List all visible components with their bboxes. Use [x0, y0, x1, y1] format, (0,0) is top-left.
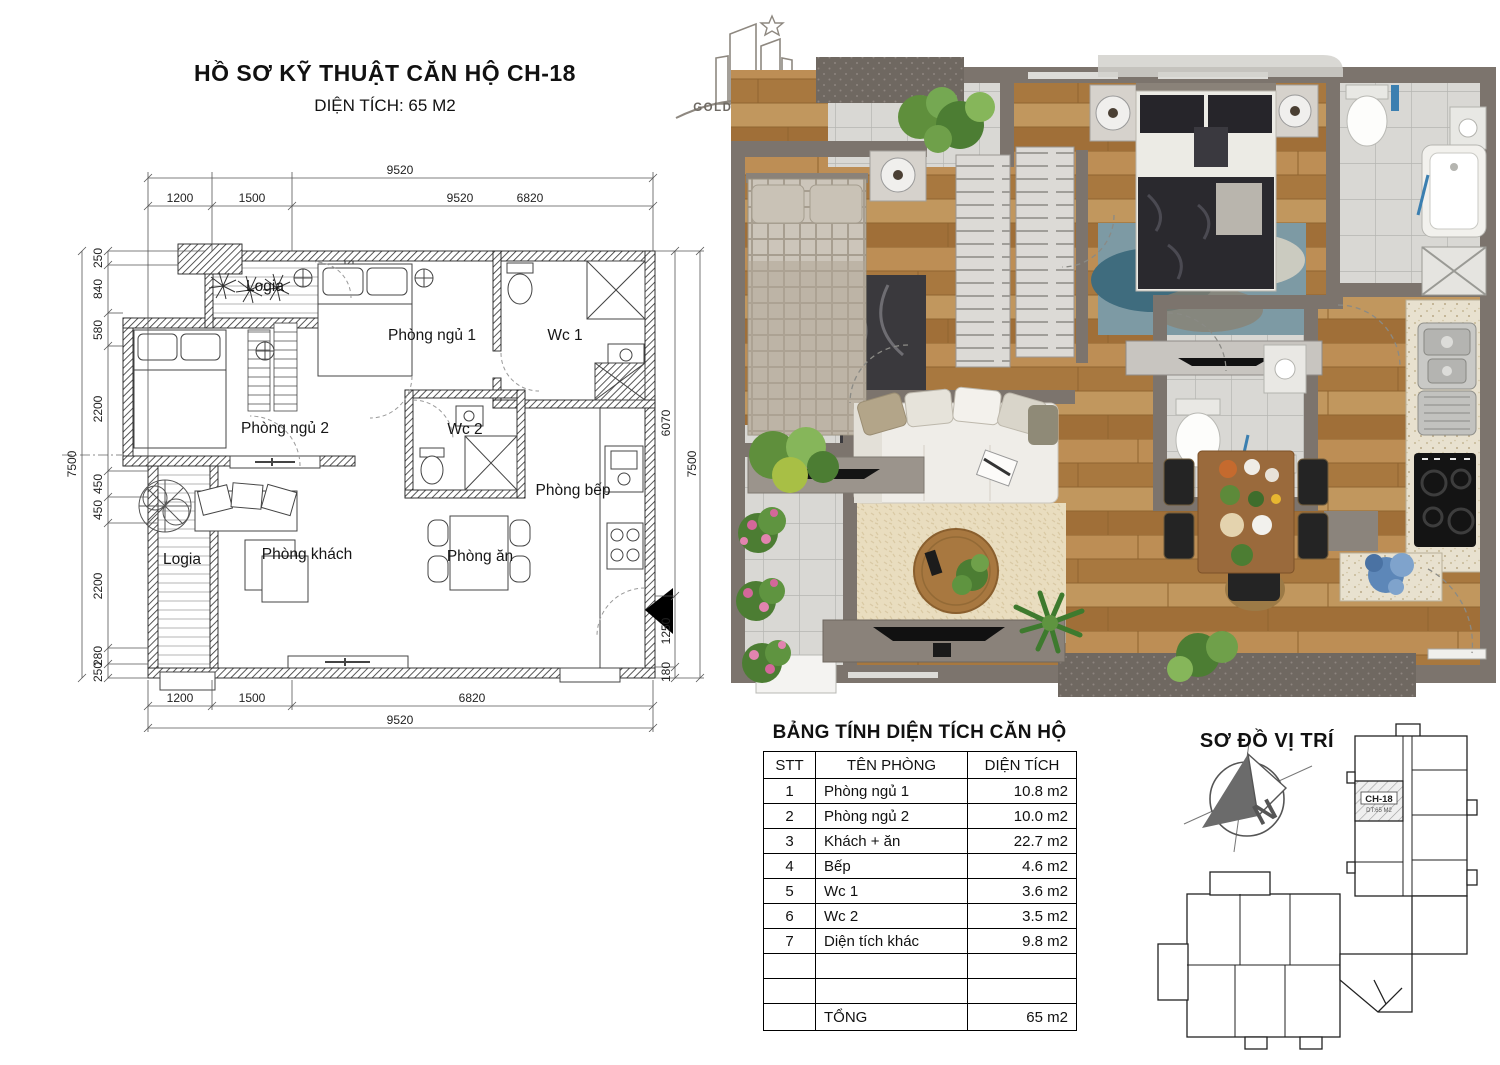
table-row: 3 Khách + ăn 22.7 m2 [764, 829, 1077, 854]
col-header-stt: STT [764, 752, 816, 779]
svg-text:450: 450 [91, 474, 105, 494]
svg-text:7500: 7500 [685, 450, 699, 477]
table-row-empty [764, 979, 1077, 1004]
cell-area: 22.7 m2 [968, 829, 1077, 854]
svg-text:1200: 1200 [167, 691, 194, 705]
svg-text:9520: 9520 [447, 191, 474, 205]
location-map-drawing: N [1150, 722, 1500, 1060]
page-title: HỒ SƠ KỸ THUẬT CĂN HỘ CH-18 [150, 60, 620, 87]
table-row-empty [764, 954, 1077, 979]
svg-text:1250: 1250 [659, 617, 673, 644]
cell-stt: 6 [764, 904, 816, 929]
cell-room: Phòng ngủ 2 [816, 804, 968, 829]
area-table-section: BẢNG TÍNH DIỆN TÍCH CĂN HỘ STT TÊN PHÒNG… [763, 722, 1076, 1031]
table-row: 6 Wc 2 3.5 m2 [764, 904, 1077, 929]
svg-text:1200: 1200 [167, 191, 194, 205]
room-label-bedroom2: Phòng ngủ 2 [241, 420, 329, 438]
svg-text:6820: 6820 [459, 691, 486, 705]
svg-text:580: 580 [91, 320, 105, 340]
coffee-table [914, 529, 998, 613]
room-label-wc1: Wc 1 [547, 327, 582, 345]
cell-stt: 2 [764, 804, 816, 829]
cell-room: Khách + ăn [816, 829, 968, 854]
wc1-fixtures [507, 261, 645, 367]
room-label-logia-bottom: Logia [163, 551, 201, 569]
wc2-fixtures [420, 406, 517, 490]
cell-room: Bếp [816, 854, 968, 879]
svg-text:2200: 2200 [91, 395, 105, 422]
room-label-bedroom1: Phòng ngủ 1 [388, 327, 476, 345]
col-header-ten-phong: TÊN PHÒNG [816, 752, 968, 779]
location-map-section: SƠ ĐỒ VỊ TRÍ N [1150, 722, 1500, 1060]
cell-stt: 4 [764, 854, 816, 879]
cell-stt: 5 [764, 879, 816, 904]
render-drawing [728, 55, 1500, 705]
area-table-title: BẢNG TÍNH DIỆN TÍCH CĂN HỘ [763, 722, 1076, 744]
svg-text:250: 250 [91, 662, 105, 682]
shaft-symbol [595, 363, 645, 400]
cell-stt: 7 [764, 929, 816, 954]
unit-sublabel: DT:65 M2 [1366, 808, 1392, 814]
total-label: TỔNG [816, 1004, 968, 1031]
cell-area: 4.6 m2 [968, 854, 1077, 879]
table-row: 5 Wc 1 3.6 m2 [764, 879, 1077, 904]
room-label-living: Phòng khách [262, 546, 353, 564]
area-table: STT TÊN PHÒNG DIỆN TÍCH 1 Phòng ngủ 1 10… [763, 751, 1077, 1031]
cell-area: 9.8 m2 [968, 929, 1077, 954]
total-value: 65 m2 [968, 1004, 1077, 1031]
room-label-wc2: Wc 2 [447, 421, 482, 439]
svg-text:2200: 2200 [91, 572, 105, 599]
col-header-dien-tich: DIỆN TÍCH [968, 752, 1077, 779]
room-label-dining: Phòng ăn [447, 548, 513, 566]
cell-stt: 1 [764, 779, 816, 804]
cell-area: 3.6 m2 [968, 879, 1077, 904]
unit-ch18-highlight: CH-18 DT:65 M2 [1355, 781, 1403, 821]
bed1-symbol [318, 264, 412, 376]
cell-room: Wc 1 [816, 879, 968, 904]
title-block: HỒ SƠ KỸ THUẬT CĂN HỘ CH-18 DIỆN TÍCH: 6… [150, 60, 620, 116]
location-map-title: SƠ ĐỒ VỊ TRÍ [1150, 730, 1384, 753]
cell-room: Diện tích khác [816, 929, 968, 954]
building-footprint [1158, 724, 1477, 1049]
svg-text:6820: 6820 [517, 191, 544, 205]
svg-text:840: 840 [91, 279, 105, 299]
table-row: 1 Phòng ngủ 1 10.8 m2 [764, 779, 1077, 804]
cell-area: 10.8 m2 [968, 779, 1077, 804]
table-row: 7 Diện tích khác 9.8 m2 [764, 929, 1077, 954]
table-header-row: STT TÊN PHÒNG DIỆN TÍCH [764, 752, 1077, 779]
svg-text:250: 250 [91, 248, 105, 268]
compass-icon: N [1184, 736, 1312, 852]
svg-text:180: 180 [659, 662, 673, 682]
kitchen-symbols [560, 408, 643, 682]
page-subtitle: DIỆN TÍCH: 65 M2 [150, 96, 620, 116]
technical-floor-plan: 9520 1200 1500 9520 6820 1200 1500 6820 … [60, 148, 710, 732]
cell-room: Wc 2 [816, 904, 968, 929]
rendered-floor-plan [728, 55, 1500, 705]
svg-text:450: 450 [91, 500, 105, 520]
table-row-total: TỔNG 65 m2 [764, 1004, 1077, 1031]
table-row: 4 Bếp 4.6 m2 [764, 854, 1077, 879]
cell-area: 10.0 m2 [968, 804, 1077, 829]
svg-text:7500: 7500 [65, 450, 79, 477]
room-label-kitchen: Phòng bếp [536, 482, 611, 500]
table-row: 2 Phòng ngủ 2 10.0 m2 [764, 804, 1077, 829]
cell-room: Phòng ngủ 1 [816, 779, 968, 804]
wardrobe-symbol [248, 323, 297, 411]
cell-stt: 3 [764, 829, 816, 854]
svg-text:6070: 6070 [659, 409, 673, 436]
svg-text:1500: 1500 [239, 691, 266, 705]
technical-plan-drawing: 9520 1200 1500 9520 6820 1200 1500 6820 … [60, 148, 710, 732]
svg-text:9520: 9520 [387, 713, 414, 727]
unit-label: CH-18 [1365, 794, 1392, 805]
room-label-logia-top: Logia [246, 278, 284, 296]
svg-text:1500: 1500 [239, 191, 266, 205]
cell-area: 3.5 m2 [968, 904, 1077, 929]
svg-text:9520: 9520 [387, 163, 414, 177]
